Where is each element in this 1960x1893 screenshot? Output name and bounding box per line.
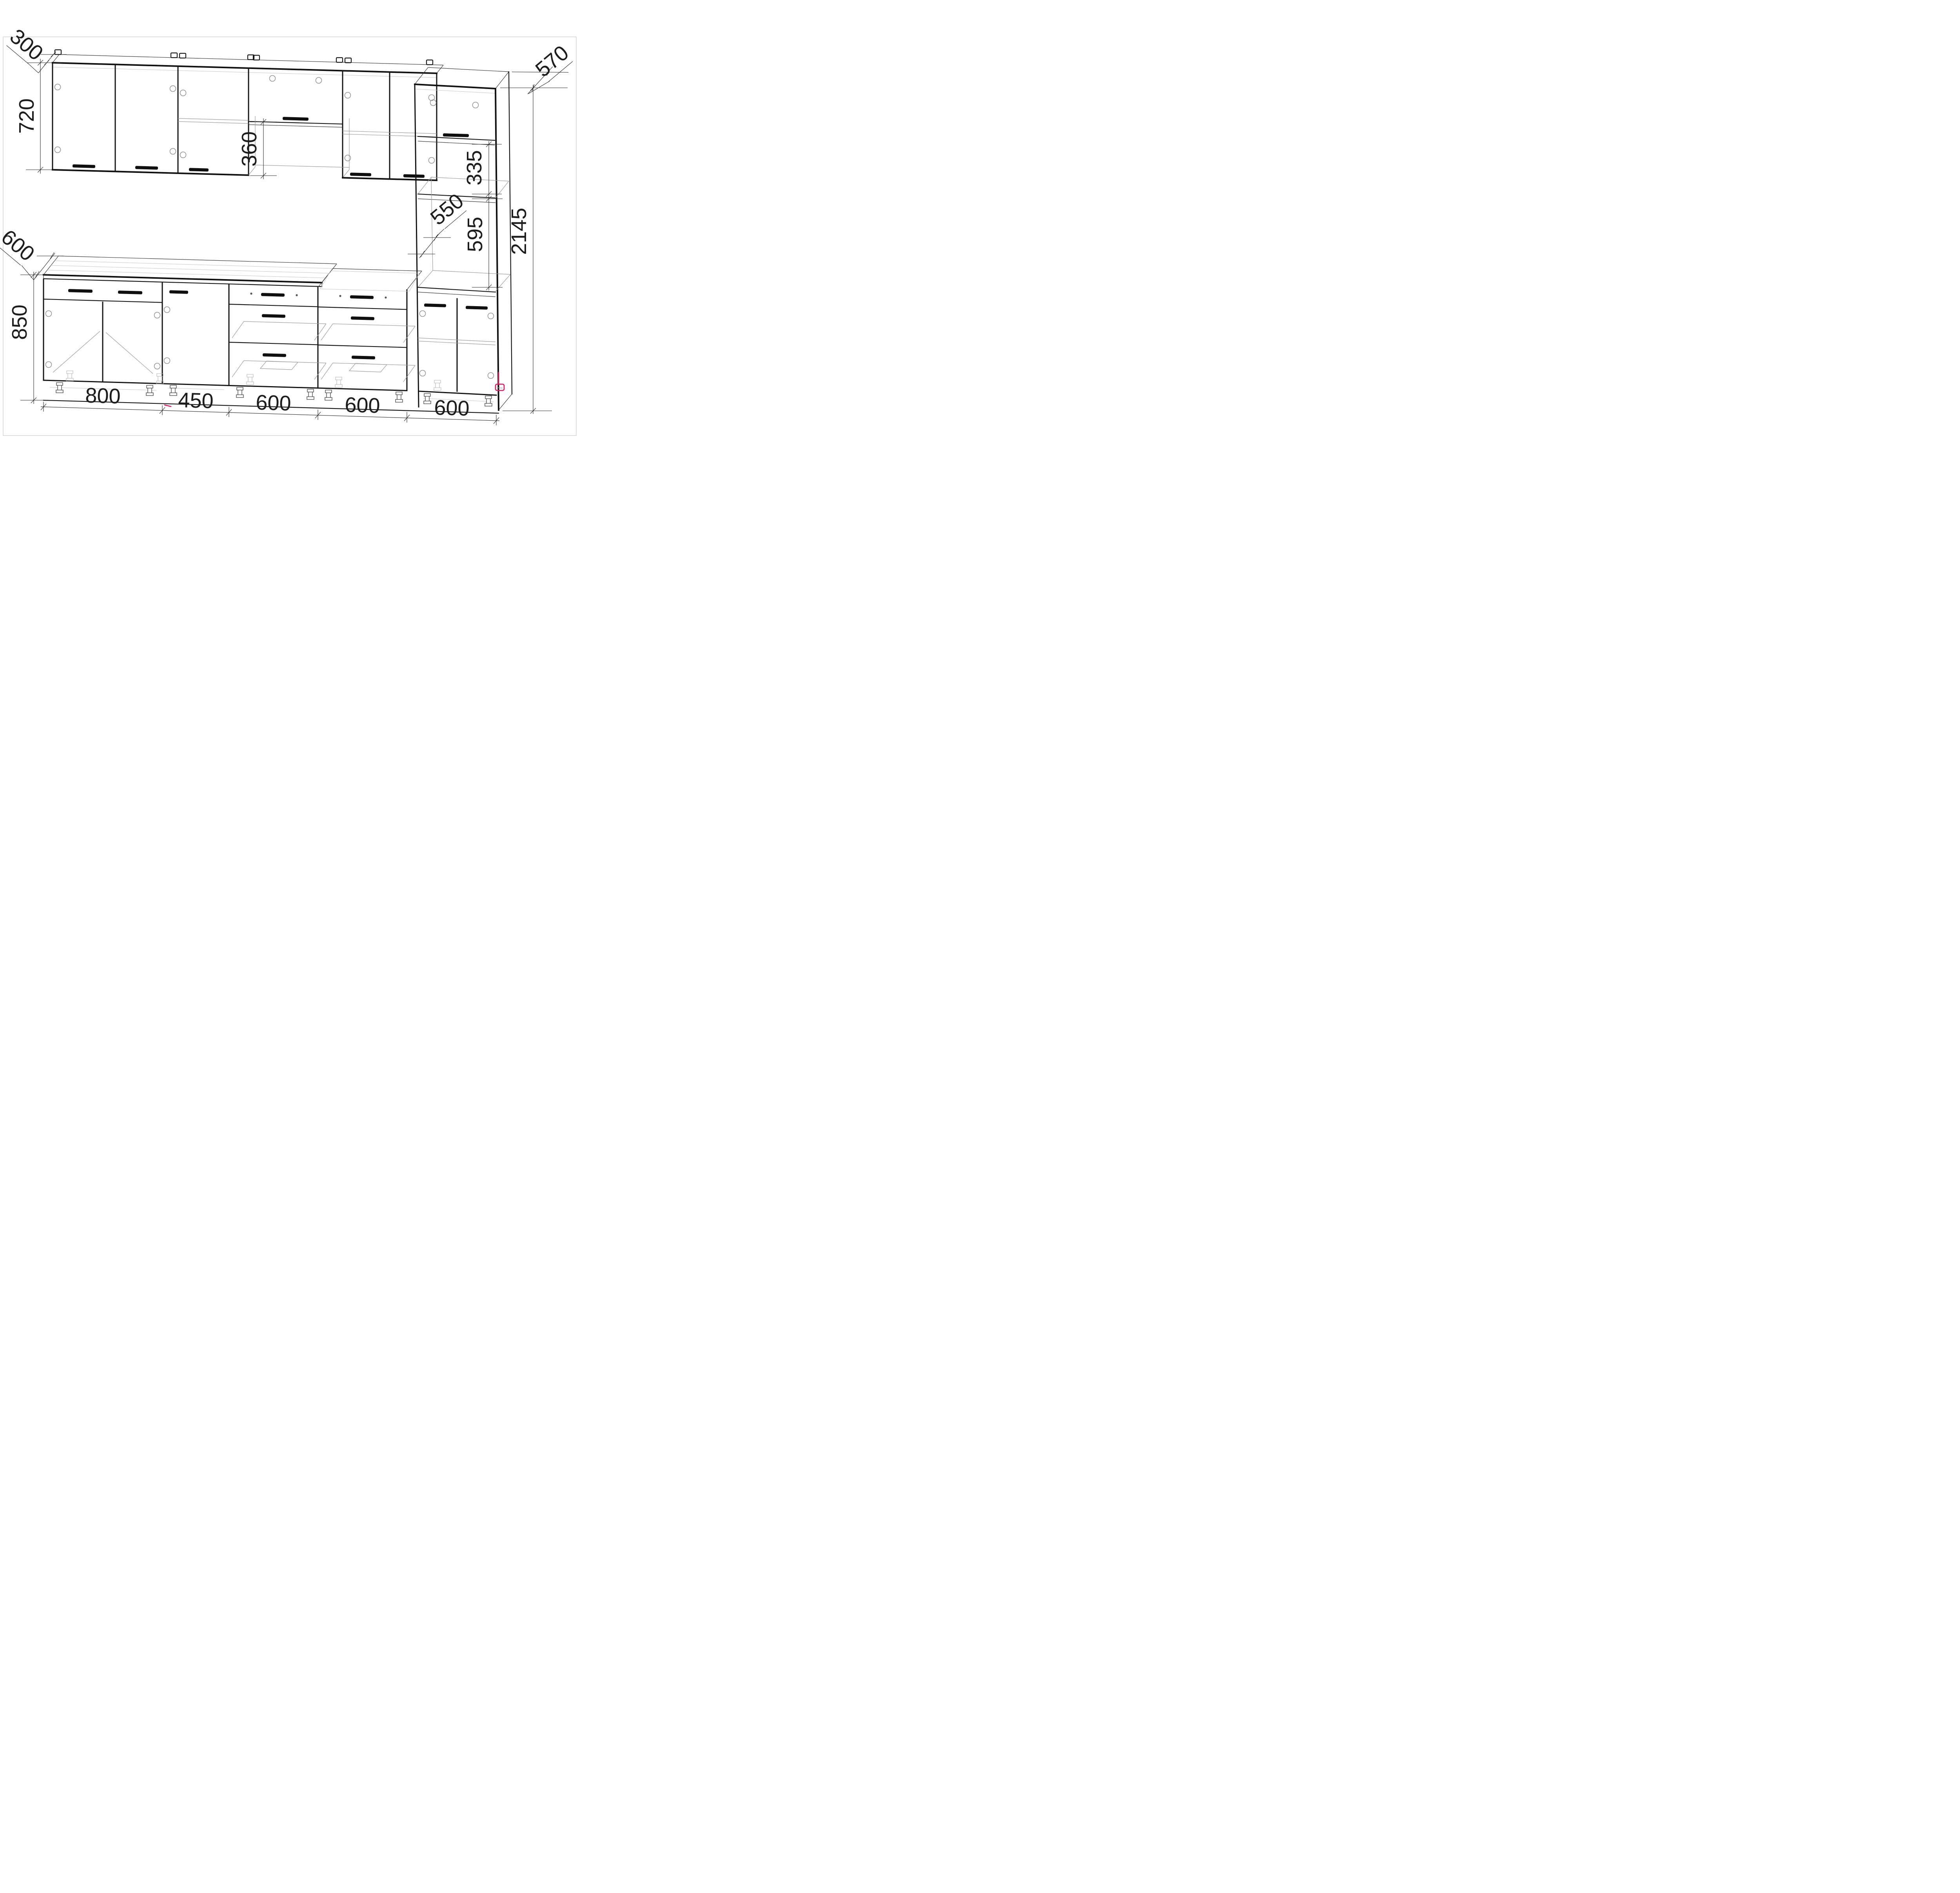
dim-label-300: 300 [5,24,48,65]
dim-niche-height: 360 [238,118,277,179]
door-handle [424,303,446,307]
drawing-sheet: 300 720 360 [0,0,579,473]
door-handle [466,306,488,310]
dimensions: 300 720 360 [0,24,574,425]
dim-counter-depth: 600 [0,225,64,280]
drawer-unit-600-a [229,292,326,379]
dim-label-2145: 2145 [507,208,531,255]
dim-label-600-a: 600 [256,391,292,416]
drawer-handle [118,290,142,294]
dim-label-335: 335 [463,150,486,185]
door-handle [189,168,209,171]
dim-wall-height: 720 [15,59,58,174]
base-cabinet-800 [44,289,162,390]
countertop [44,256,337,287]
drawer-handle [263,353,286,357]
flap-handle [283,117,309,121]
dim-label-600-b: 600 [345,393,381,418]
base-cabinet-450 [164,290,225,390]
dim-tall-depth: 570 [500,41,574,94]
highlight-mark [165,405,171,407]
flap-handle [443,133,469,137]
wall-cabinet-800 [53,63,249,175]
door-handle [169,290,188,294]
dim-label-570: 570 [531,41,573,82]
page-frame [3,37,576,436]
dim-label-800: 800 [85,384,121,408]
drawer-handle [68,289,93,293]
wall-cabinet-600 [343,72,437,180]
drawer-handle [261,293,285,297]
drawer-unit-600-b [318,269,422,382]
dim-label-595: 595 [463,217,487,252]
dim-label-600-depth: 600 [0,225,39,266]
dim-label-850: 850 [8,305,31,340]
dim-label-450: 450 [178,388,214,413]
wall-bracket-icons [55,50,433,65]
dim-label-600-c: 600 [434,396,470,421]
base-cabinet-600 [418,299,496,402]
drawer-handle [352,356,375,359]
door-handle [73,164,95,168]
dim-wall-depth: 300 [4,24,67,73]
dim-total-height: 2145 [503,85,552,414]
drawer-handle [350,295,374,299]
dim-label-360: 360 [238,131,261,167]
tall-flap-door [418,100,495,145]
door-handle [350,172,371,176]
drawer-handle [262,314,285,318]
dim-width-chain: 800 450 600 600 600 [41,384,499,425]
dim-label-720: 720 [15,98,38,134]
door-handle [135,166,158,170]
drawer-handle [351,316,374,320]
door-handle [403,174,425,178]
highlight-bracket [495,372,504,390]
kitchen-cad-drawing: 300 720 360 [0,0,579,473]
